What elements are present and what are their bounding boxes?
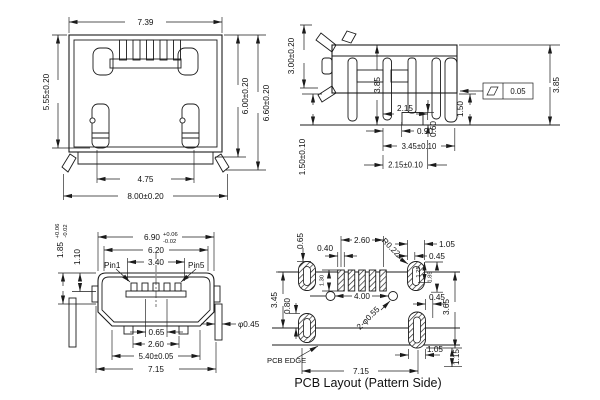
spring-slot: [182, 104, 199, 148]
side-wing: [92, 286, 98, 302]
bottom-bump: [124, 326, 133, 334]
dim-mating-leg-width: φ0.45: [238, 320, 260, 329]
dim-front-height-inner-right: 6.00±0.20: [241, 77, 250, 114]
comb-tooth: [147, 40, 154, 60]
dim-pcb-shield-pad-inner: 1.25: [416, 266, 422, 277]
contact-leg: [383, 58, 392, 120]
locating-hole: [389, 292, 398, 301]
signal-pad: [369, 270, 376, 291]
dim-front-width-slots: 4.75: [138, 175, 154, 184]
dimple: [180, 118, 185, 123]
side-bump: [322, 58, 332, 74]
shield-tab: [316, 33, 336, 52]
side-wing: [214, 286, 220, 302]
dim-side-height-lead: 1.50: [456, 101, 465, 117]
comb-tooth: [160, 40, 167, 60]
dim-mating-pin-pitch: 0.65: [149, 328, 165, 337]
dim-pcb-signal-pad-height: 1.30: [320, 275, 326, 286]
dim-mating-width-inner: 6.20: [148, 246, 164, 255]
side-view: 3.00±0.20 3.85 2.15 0.90 0.60 3.45±0.10 …: [287, 25, 561, 175]
dim-pcb-height-lower-left: 0.80: [283, 298, 292, 314]
dim-mating-height-opening: 1.85: [56, 242, 65, 258]
signal-pad: [348, 270, 355, 291]
contact-leg: [348, 58, 357, 121]
flatness-symbol-icon: [487, 87, 498, 95]
dim-pcb-pad-span: 2.60: [354, 236, 370, 245]
shell-inner: [74, 40, 217, 147]
dim-front-width-top: 7.39: [138, 18, 154, 27]
shield-pad-slot: [304, 267, 311, 286]
dim-side-height-foot: 1.50±0.10: [298, 138, 307, 175]
shield-tab: [342, 31, 356, 43]
dim-pcb-pad-width: 0.40: [317, 244, 333, 253]
comb-tooth: [120, 40, 127, 60]
dim-mating-height-opening-tol-plus: +0.06: [55, 224, 61, 239]
dim-pcb-hole-span: 4.00: [354, 292, 370, 301]
dim-side-width-lower: 2.15±0.10: [388, 161, 423, 170]
dim-pcb-height-left: 3.45: [270, 292, 279, 308]
dim-mating-height-tongue: 1.10: [73, 249, 82, 265]
dim-mating-width-feet: 5.40±0.05: [139, 352, 174, 361]
comb-tooth: [174, 40, 181, 60]
mating-face-view: 6.90 +0.06 -0.02 6.20 3.40 Pin1 Pin5 1.8…: [55, 224, 260, 374]
dim-front-height-outer-right: 6.60±0.20: [262, 84, 271, 121]
dim-front-width-bottom: 8.00±0.20: [127, 192, 164, 201]
pin5-label: Pin5: [188, 261, 205, 270]
dim-front-height-left: 5.55±0.20: [42, 73, 51, 110]
dim-pcb-shield-pad-height: 1.85: [428, 271, 434, 282]
dim-mating-width-overall: 7.15: [148, 365, 164, 374]
signal-pad: [359, 270, 366, 291]
contact-pin: [131, 283, 137, 291]
micro-usb-drawing: 7.39 5.55±0.20 6.00±0.20 6.60±0.20 4.75 …: [0, 0, 600, 400]
side-leg: [69, 298, 76, 347]
dim-side-lead-thickness: 0.60: [429, 121, 438, 137]
dim-mating-width-bumps: 2.60: [148, 340, 164, 349]
front-view: 7.39 5.55±0.20 6.00±0.20 6.60±0.20 4.75 …: [42, 17, 271, 201]
pin1-label: Pin1: [104, 261, 121, 270]
dim-side-height-tab: 3.00±0.20: [287, 37, 296, 74]
dim-pcb-shield-pad-width: 1.05: [439, 240, 455, 249]
contact-leg: [432, 58, 441, 119]
spring-slot: [92, 104, 109, 148]
contact-pin: [164, 283, 170, 291]
side-leg: [215, 304, 222, 340]
dim-pcb-width-bottom: 7.15: [353, 367, 369, 376]
shield-pad-slot: [304, 319, 311, 338]
dim-mating-width-shell-tol-plus: +0.06: [163, 232, 178, 238]
dim-pcb-pad-width-bottom: 1.05: [427, 345, 443, 354]
comb-tooth: [133, 40, 140, 60]
signal-pad: [380, 270, 387, 291]
mount-foot: [62, 154, 76, 172]
dim-pcb-slot-width: 0.45: [429, 252, 445, 261]
signal-pad: [338, 270, 345, 291]
pcb-layout-view: R0.22 2-φ0.55 0.65 2.60 0.40 1.05 0.45 1…: [267, 233, 462, 390]
dim-mating-height-opening-tol-minus: -0.02: [63, 224, 69, 237]
contact-pin: [175, 283, 181, 291]
dim-side-height-body: 3.85: [373, 77, 382, 93]
locating-hole: [326, 292, 335, 301]
dim-mating-width-pins: 3.40: [148, 258, 164, 267]
dim-pcb-edge-offset: 1.15: [452, 349, 461, 365]
view-caption: PCB Layout (Pattern Side): [294, 376, 441, 390]
shield-pad-slot: [414, 317, 421, 343]
pcb-edge-label: PCB EDGE: [267, 356, 306, 365]
flange: [78, 152, 213, 164]
dim-mating-width-shell: 6.90: [144, 233, 160, 242]
contact-pin: [142, 283, 148, 291]
dim-pcb-holes: 2-φ0.55: [355, 305, 382, 332]
technical-drawing-sheet: 7.39 5.55±0.20 6.00±0.20 6.60±0.20 4.75 …: [0, 0, 600, 400]
housing-bar: [391, 70, 408, 82]
smt-foot: [402, 113, 423, 126]
dim-side-flatness: 0.05: [510, 87, 526, 96]
dim-mating-width-shell-tol-minus: -0.02: [163, 239, 176, 245]
dim-side-height-right: 3.85: [552, 77, 561, 93]
dim-side-width-mid: 3.45±0.10: [402, 142, 437, 151]
dim-pcb-pad-offset: 0.65: [296, 233, 305, 249]
dim-pcb-height-right: 3.65: [442, 299, 451, 315]
dim-side-width-pin-gap: 2.15: [397, 104, 413, 113]
body-outline: [332, 45, 457, 93]
slot-detail: [92, 133, 199, 138]
bottom-bump: [179, 326, 188, 334]
dimple: [90, 118, 95, 123]
